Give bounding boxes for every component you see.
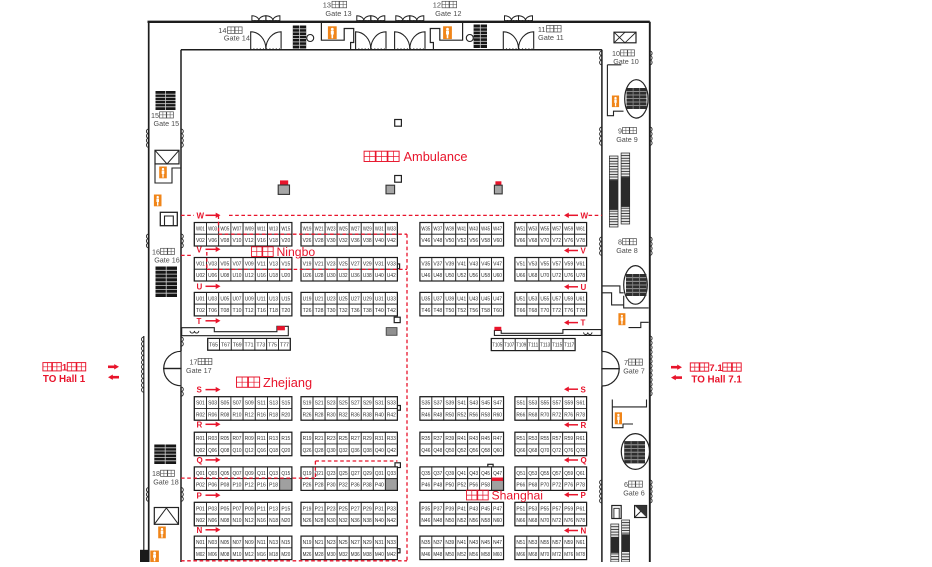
svg-text:P41: P41 bbox=[457, 506, 466, 512]
svg-text:Q50: Q50 bbox=[445, 448, 454, 454]
svg-text:V53: V53 bbox=[528, 261, 537, 267]
svg-text:V60: V60 bbox=[493, 238, 502, 244]
svg-text:S05: S05 bbox=[220, 401, 229, 407]
svg-text:Q66: Q66 bbox=[516, 448, 525, 454]
svg-text:U10: U10 bbox=[233, 273, 242, 279]
svg-text:T08: T08 bbox=[220, 308, 229, 314]
svg-text:W33: W33 bbox=[387, 226, 396, 232]
svg-text:P11: P11 bbox=[257, 506, 266, 512]
svg-text:W07: W07 bbox=[233, 226, 242, 232]
svg-text:Q52: Q52 bbox=[457, 448, 466, 454]
svg-text:W39: W39 bbox=[445, 226, 454, 232]
svg-text:R72: R72 bbox=[552, 412, 561, 418]
svg-text:W03: W03 bbox=[208, 226, 217, 232]
svg-text:P30: P30 bbox=[327, 483, 336, 489]
svg-text:R40: R40 bbox=[375, 412, 384, 418]
svg-text:U48: U48 bbox=[433, 273, 442, 279]
svg-text:R16: R16 bbox=[257, 412, 266, 418]
svg-text:M12: M12 bbox=[245, 552, 254, 558]
svg-text:P33: P33 bbox=[387, 506, 396, 512]
svg-text:M20: M20 bbox=[281, 552, 290, 558]
svg-text:P02: P02 bbox=[196, 483, 205, 489]
svg-text:R47: R47 bbox=[493, 436, 502, 442]
svg-text:T68: T68 bbox=[528, 308, 537, 314]
svg-text:P19: P19 bbox=[303, 506, 312, 512]
svg-text:T: T bbox=[197, 317, 202, 326]
svg-text:N51: N51 bbox=[516, 540, 525, 546]
svg-text:Q46: Q46 bbox=[421, 448, 430, 454]
svg-text:T30: T30 bbox=[327, 308, 336, 314]
svg-text:S47: S47 bbox=[493, 401, 502, 407]
svg-text:N70: N70 bbox=[540, 518, 549, 524]
svg-text:P76: P76 bbox=[564, 483, 573, 489]
svg-text:Q28: Q28 bbox=[315, 448, 324, 454]
svg-text:N53: N53 bbox=[528, 540, 537, 546]
svg-text:Q32: Q32 bbox=[339, 448, 348, 454]
svg-text:P37: P37 bbox=[433, 506, 442, 512]
svg-text:R56: R56 bbox=[469, 412, 478, 418]
svg-text:U01: U01 bbox=[196, 296, 205, 302]
svg-text:N15: N15 bbox=[281, 540, 290, 546]
svg-text:T48: T48 bbox=[433, 308, 442, 314]
svg-text:V78: V78 bbox=[576, 238, 585, 244]
svg-text:W31: W31 bbox=[375, 226, 384, 232]
svg-text:W27: W27 bbox=[351, 226, 360, 232]
svg-text:N60: N60 bbox=[493, 518, 502, 524]
svg-text:S55: S55 bbox=[540, 401, 549, 407]
svg-text:Q07: Q07 bbox=[233, 471, 242, 477]
svg-text:U45: U45 bbox=[481, 296, 490, 302]
svg-text:P61: P61 bbox=[576, 506, 585, 512]
svg-text:S59: S59 bbox=[564, 401, 573, 407]
svg-text:M40: M40 bbox=[375, 552, 384, 558]
svg-text:V28: V28 bbox=[315, 238, 324, 244]
svg-text:N09: N09 bbox=[245, 540, 254, 546]
svg-text:Gate 12: Gate 12 bbox=[435, 9, 461, 18]
svg-text:P40: P40 bbox=[375, 483, 384, 489]
svg-text:Q39: Q39 bbox=[445, 471, 454, 477]
svg-text:P07: P07 bbox=[233, 506, 242, 512]
svg-text:Q02: Q02 bbox=[196, 448, 205, 454]
svg-text:V23: V23 bbox=[327, 261, 336, 267]
svg-text:U70: U70 bbox=[540, 273, 549, 279]
svg-text:P72: P72 bbox=[552, 483, 561, 489]
svg-text:Q25: Q25 bbox=[339, 471, 348, 477]
svg-text:V59: V59 bbox=[564, 261, 573, 267]
svg-text:M66: M66 bbox=[516, 552, 525, 558]
svg-text:Zhejiang: Zhejiang bbox=[263, 375, 312, 390]
svg-text:W21: W21 bbox=[315, 226, 324, 232]
svg-text:N21: N21 bbox=[315, 540, 324, 546]
svg-text:V: V bbox=[581, 247, 587, 256]
svg-text:V31: V31 bbox=[375, 261, 384, 267]
svg-text:N47: N47 bbox=[493, 540, 502, 546]
svg-text:V18: V18 bbox=[269, 238, 278, 244]
svg-text:N10: N10 bbox=[233, 518, 242, 524]
svg-text:Gate 14: Gate 14 bbox=[224, 34, 250, 43]
svg-text:S39: S39 bbox=[445, 401, 454, 407]
svg-text:V61: V61 bbox=[576, 261, 585, 267]
svg-text:Q06: Q06 bbox=[208, 448, 217, 454]
svg-text:U07: U07 bbox=[233, 296, 242, 302]
svg-text:N46: N46 bbox=[421, 518, 430, 524]
svg-text:Q13: Q13 bbox=[269, 471, 278, 477]
svg-text:U55: U55 bbox=[540, 296, 549, 302]
svg-text:T36: T36 bbox=[351, 308, 360, 314]
svg-text:R32: R32 bbox=[339, 412, 348, 418]
svg-text:P16: P16 bbox=[257, 483, 266, 489]
svg-text:N55: N55 bbox=[540, 540, 549, 546]
svg-text:V13: V13 bbox=[269, 261, 278, 267]
svg-text:V06: V06 bbox=[208, 238, 217, 244]
svg-text:V33: V33 bbox=[387, 261, 396, 267]
svg-text:R37: R37 bbox=[433, 436, 442, 442]
svg-text:V27: V27 bbox=[351, 261, 360, 267]
svg-text:U: U bbox=[581, 283, 587, 292]
svg-text:N02: N02 bbox=[196, 518, 205, 524]
svg-text:Q05: Q05 bbox=[220, 471, 229, 477]
svg-text:S43: S43 bbox=[469, 401, 478, 407]
svg-text:M50: M50 bbox=[445, 552, 454, 558]
svg-text:T20: T20 bbox=[281, 308, 290, 314]
svg-text:Q27: Q27 bbox=[351, 471, 360, 477]
svg-text:R35: R35 bbox=[421, 436, 430, 442]
svg-text:Gate 8: Gate 8 bbox=[616, 246, 638, 255]
svg-text:V03: V03 bbox=[208, 261, 217, 267]
svg-text:V57: V57 bbox=[552, 261, 561, 267]
svg-text:T50: T50 bbox=[445, 308, 454, 314]
svg-text:V16: V16 bbox=[257, 238, 266, 244]
svg-text:V11: V11 bbox=[257, 261, 266, 267]
svg-text:M68: M68 bbox=[528, 552, 537, 558]
svg-text:P03: P03 bbox=[208, 506, 217, 512]
svg-text:V70: V70 bbox=[540, 238, 549, 244]
svg-text:R25: R25 bbox=[339, 436, 348, 442]
svg-text:M10: M10 bbox=[233, 552, 242, 558]
svg-text:S09: S09 bbox=[245, 401, 254, 407]
svg-text:S15: S15 bbox=[281, 401, 290, 407]
svg-text:U66: U66 bbox=[516, 273, 525, 279]
svg-text:S35: S35 bbox=[421, 401, 430, 407]
svg-text:W09: W09 bbox=[245, 226, 254, 232]
svg-text:U56: U56 bbox=[469, 273, 478, 279]
svg-text:P05: P05 bbox=[220, 506, 229, 512]
svg-text:N12: N12 bbox=[245, 518, 254, 524]
svg-text:Q35: Q35 bbox=[421, 471, 430, 477]
svg-text:R08: R08 bbox=[220, 412, 229, 418]
svg-text:R33: R33 bbox=[387, 436, 396, 442]
svg-text:N36: N36 bbox=[351, 518, 360, 524]
svg-text:S45: S45 bbox=[481, 401, 490, 407]
svg-text:V01: V01 bbox=[196, 261, 205, 267]
svg-text:W19: W19 bbox=[303, 226, 312, 232]
svg-text:W35: W35 bbox=[421, 226, 430, 232]
svg-text:Q51: Q51 bbox=[516, 471, 525, 477]
svg-text:N32: N32 bbox=[339, 518, 348, 524]
svg-text:Q40: Q40 bbox=[375, 448, 384, 454]
svg-text:U60: U60 bbox=[493, 273, 502, 279]
svg-text:Q19: Q19 bbox=[303, 471, 312, 477]
svg-text:V72: V72 bbox=[552, 238, 561, 244]
svg-text:Q58: Q58 bbox=[481, 448, 490, 454]
svg-text:M52: M52 bbox=[457, 552, 466, 558]
svg-text:V76: V76 bbox=[564, 238, 573, 244]
svg-text:Q78: Q78 bbox=[576, 448, 585, 454]
svg-text:Q08: Q08 bbox=[220, 448, 229, 454]
svg-text:P32: P32 bbox=[339, 483, 348, 489]
svg-text:R70: R70 bbox=[540, 412, 549, 418]
svg-text:R30: R30 bbox=[327, 412, 336, 418]
svg-text:T12: T12 bbox=[245, 308, 254, 314]
svg-text:W43: W43 bbox=[469, 226, 478, 232]
svg-text:P51: P51 bbox=[516, 506, 525, 512]
svg-text:V19: V19 bbox=[303, 261, 312, 267]
svg-text:V12: V12 bbox=[245, 238, 254, 244]
svg-text:R19: R19 bbox=[303, 436, 312, 442]
svg-text:T76: T76 bbox=[564, 308, 573, 314]
svg-text:Q72: Q72 bbox=[552, 448, 561, 454]
svg-text:R57: R57 bbox=[552, 436, 561, 442]
svg-text:T117: T117 bbox=[564, 343, 574, 349]
svg-text:Q29: Q29 bbox=[363, 471, 372, 477]
svg-text:W25: W25 bbox=[339, 226, 348, 232]
svg-text:U59: U59 bbox=[564, 296, 573, 302]
svg-text:T70: T70 bbox=[540, 308, 549, 314]
svg-text:M18: M18 bbox=[269, 552, 278, 558]
svg-text:R76: R76 bbox=[564, 412, 573, 418]
svg-text:P38: P38 bbox=[363, 483, 372, 489]
svg-text:T67: T67 bbox=[221, 342, 230, 348]
svg-text:R26: R26 bbox=[303, 412, 312, 418]
svg-text:N30: N30 bbox=[327, 518, 336, 524]
svg-text:T58: T58 bbox=[481, 308, 490, 314]
svg-text:Q37: Q37 bbox=[433, 471, 442, 477]
svg-text:W45: W45 bbox=[481, 226, 490, 232]
svg-text:S23: S23 bbox=[327, 401, 336, 407]
svg-text:T109: T109 bbox=[516, 343, 526, 349]
svg-text:Gate 16: Gate 16 bbox=[154, 256, 180, 265]
svg-text:U58: U58 bbox=[481, 273, 490, 279]
svg-text:R27: R27 bbox=[351, 436, 360, 442]
svg-text:W01: W01 bbox=[196, 226, 205, 232]
svg-text:P59: P59 bbox=[564, 506, 573, 512]
svg-text:S11: S11 bbox=[257, 401, 266, 407]
svg-text:V40: V40 bbox=[375, 238, 384, 244]
svg-text:P27: P27 bbox=[351, 506, 360, 512]
svg-text:T111: T111 bbox=[528, 343, 538, 349]
svg-text:R61: R61 bbox=[576, 436, 585, 442]
svg-text:R52: R52 bbox=[457, 412, 466, 418]
svg-text:P21: P21 bbox=[315, 506, 324, 512]
svg-text:U41: U41 bbox=[457, 296, 466, 302]
svg-text:Q18: Q18 bbox=[269, 448, 278, 454]
svg-text:U27: U27 bbox=[351, 296, 360, 302]
svg-text:V25: V25 bbox=[339, 261, 348, 267]
svg-text:T18: T18 bbox=[269, 308, 278, 314]
svg-text:N61: N61 bbox=[576, 540, 585, 546]
svg-text:V45: V45 bbox=[481, 261, 490, 267]
svg-text:P: P bbox=[197, 491, 203, 500]
svg-text:T105: T105 bbox=[492, 343, 502, 349]
svg-text:Q57: Q57 bbox=[552, 471, 561, 477]
svg-text:Gate 15: Gate 15 bbox=[154, 119, 180, 128]
svg-text:U29: U29 bbox=[363, 296, 372, 302]
svg-text:U30: U30 bbox=[327, 273, 336, 279]
svg-text:T26: T26 bbox=[303, 308, 312, 314]
svg-text:R20: R20 bbox=[281, 412, 290, 418]
svg-text:V42: V42 bbox=[387, 238, 396, 244]
svg-text:T32: T32 bbox=[339, 308, 348, 314]
svg-text:R48: R48 bbox=[433, 412, 442, 418]
svg-text:N59: N59 bbox=[564, 540, 573, 546]
svg-text:U06: U06 bbox=[208, 273, 217, 279]
svg-text:N23: N23 bbox=[327, 540, 336, 546]
svg-text:Q53: Q53 bbox=[528, 471, 537, 477]
svg-text:V52: V52 bbox=[457, 238, 466, 244]
svg-text:TO Hall 1: TO Hall 1 bbox=[43, 374, 86, 385]
svg-text:S33: S33 bbox=[387, 401, 396, 407]
svg-text:N58: N58 bbox=[481, 518, 490, 524]
svg-text:R10: R10 bbox=[233, 412, 242, 418]
svg-text:U32: U32 bbox=[339, 273, 348, 279]
svg-text:P09: P09 bbox=[245, 506, 254, 512]
svg-text:S: S bbox=[197, 386, 203, 395]
svg-text:U33: U33 bbox=[387, 296, 396, 302]
svg-text:R29: R29 bbox=[363, 436, 372, 442]
svg-text:N26: N26 bbox=[303, 518, 312, 524]
svg-text:N01: N01 bbox=[196, 540, 205, 546]
svg-text:P28: P28 bbox=[315, 483, 324, 489]
svg-text:T113: T113 bbox=[540, 343, 550, 349]
svg-text:V55: V55 bbox=[540, 261, 549, 267]
svg-text:V50: V50 bbox=[445, 238, 454, 244]
svg-text:Q15: Q15 bbox=[281, 471, 290, 477]
svg-text:W13: W13 bbox=[269, 226, 278, 232]
svg-text:R05: R05 bbox=[220, 436, 229, 442]
svg-text:M72: M72 bbox=[552, 552, 561, 558]
svg-text:U08: U08 bbox=[220, 273, 229, 279]
svg-text:M48: M48 bbox=[433, 552, 442, 558]
svg-text:N: N bbox=[197, 526, 203, 535]
svg-text:M42: M42 bbox=[387, 552, 396, 558]
svg-text:Gate 9: Gate 9 bbox=[616, 135, 638, 144]
svg-text:N42: N42 bbox=[387, 518, 396, 524]
svg-text:U03: U03 bbox=[208, 296, 217, 302]
svg-text:S27: S27 bbox=[351, 401, 360, 407]
svg-text:N39: N39 bbox=[445, 540, 454, 546]
svg-text:M46: M46 bbox=[421, 552, 430, 558]
svg-text:T75: T75 bbox=[268, 342, 277, 348]
svg-text:M70: M70 bbox=[540, 552, 549, 558]
svg-text:N05: N05 bbox=[220, 540, 229, 546]
svg-text:P39: P39 bbox=[445, 506, 454, 512]
svg-text:Gate 11: Gate 11 bbox=[538, 33, 564, 42]
svg-text:N40: N40 bbox=[375, 518, 384, 524]
svg-text:W29: W29 bbox=[363, 226, 372, 232]
svg-text:R: R bbox=[197, 420, 203, 429]
svg-text:N57: N57 bbox=[552, 540, 561, 546]
svg-text:U50: U50 bbox=[445, 273, 454, 279]
svg-text:M60: M60 bbox=[493, 552, 502, 558]
svg-text:Q33: Q33 bbox=[387, 471, 396, 477]
svg-text:N11: N11 bbox=[257, 540, 266, 546]
svg-text:N27: N27 bbox=[351, 540, 360, 546]
svg-text:U36: U36 bbox=[351, 273, 360, 279]
svg-text:R43: R43 bbox=[469, 436, 478, 442]
svg-text:N78: N78 bbox=[576, 518, 585, 524]
svg-text:S03: S03 bbox=[208, 401, 217, 407]
svg-text:N19: N19 bbox=[303, 540, 312, 546]
svg-text:W: W bbox=[197, 211, 205, 220]
svg-text:Q55: Q55 bbox=[540, 471, 549, 477]
svg-text:V66: V66 bbox=[516, 238, 525, 244]
svg-text:M06: M06 bbox=[208, 552, 217, 558]
svg-text:Q45: Q45 bbox=[481, 471, 490, 477]
svg-text:V38: V38 bbox=[363, 238, 372, 244]
svg-text:M02: M02 bbox=[196, 552, 205, 558]
svg-text:P01: P01 bbox=[196, 506, 205, 512]
svg-text:M16: M16 bbox=[257, 552, 266, 558]
svg-text:P06: P06 bbox=[208, 483, 217, 489]
svg-text:R59: R59 bbox=[564, 436, 573, 442]
svg-text:P31: P31 bbox=[375, 506, 384, 512]
svg-text:R23: R23 bbox=[327, 436, 336, 442]
svg-text:V29: V29 bbox=[363, 261, 372, 267]
svg-text:M30: M30 bbox=[327, 552, 336, 558]
svg-text:P50: P50 bbox=[445, 483, 454, 489]
svg-text:W59: W59 bbox=[564, 226, 573, 232]
svg-text:P35: P35 bbox=[421, 506, 430, 512]
svg-text:V47: V47 bbox=[493, 261, 502, 267]
svg-text:T02: T02 bbox=[196, 308, 205, 314]
svg-text:V02: V02 bbox=[196, 238, 205, 244]
svg-text:W61: W61 bbox=[576, 226, 585, 232]
svg-text:U68: U68 bbox=[528, 273, 537, 279]
svg-text:T40: T40 bbox=[375, 308, 384, 314]
svg-text:V30: V30 bbox=[327, 238, 336, 244]
svg-text:U38: U38 bbox=[363, 273, 372, 279]
svg-text:U09: U09 bbox=[245, 296, 254, 302]
svg-text:P57: P57 bbox=[552, 506, 561, 512]
svg-text:U: U bbox=[197, 282, 203, 291]
svg-text:R21: R21 bbox=[315, 436, 324, 442]
svg-text:U19: U19 bbox=[303, 296, 312, 302]
svg-text:P46: P46 bbox=[421, 483, 430, 489]
svg-text:T77: T77 bbox=[280, 342, 289, 348]
svg-text:P10: P10 bbox=[233, 483, 242, 489]
svg-text:S31: S31 bbox=[375, 401, 384, 407]
svg-text:P12: P12 bbox=[245, 483, 254, 489]
svg-text:R68: R68 bbox=[528, 412, 537, 418]
svg-text:Q10: Q10 bbox=[233, 448, 242, 454]
svg-text:S13: S13 bbox=[269, 401, 278, 407]
svg-text:P78: P78 bbox=[576, 483, 585, 489]
svg-text:V46: V46 bbox=[421, 238, 430, 244]
svg-text:P47: P47 bbox=[493, 506, 502, 512]
svg-text:U47: U47 bbox=[493, 296, 502, 302]
svg-text:R11: R11 bbox=[257, 436, 266, 442]
svg-text:R07: R07 bbox=[233, 436, 242, 442]
svg-text:N31: N31 bbox=[375, 540, 384, 546]
svg-text:U31: U31 bbox=[375, 296, 384, 302]
svg-text:P43: P43 bbox=[469, 506, 478, 512]
svg-text:U02: U02 bbox=[196, 273, 205, 279]
svg-text:W47: W47 bbox=[493, 226, 502, 232]
svg-text:Q38: Q38 bbox=[363, 448, 372, 454]
svg-text:N76: N76 bbox=[564, 518, 573, 524]
svg-text:Shanghai: Shanghai bbox=[492, 489, 544, 503]
svg-text:V10: V10 bbox=[233, 238, 242, 244]
